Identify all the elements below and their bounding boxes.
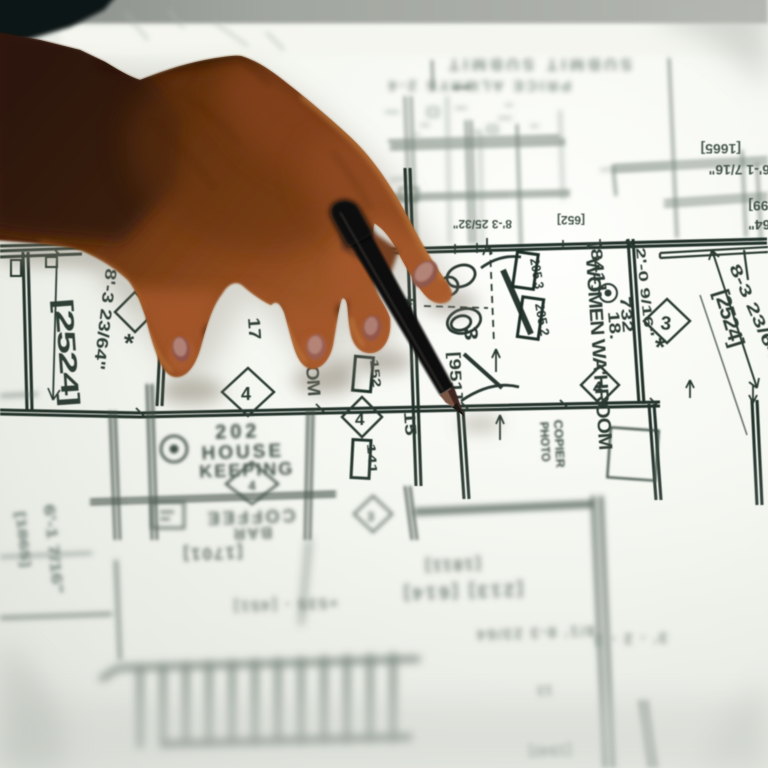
svg-text:18.: 18. [604, 311, 623, 340]
svg-text:*: * [124, 328, 135, 358]
svg-text:[652]: [652] [557, 213, 585, 227]
svg-text:6'-1 7/16": 6'-1 7/16" [709, 162, 768, 178]
svg-text:3: 3 [459, 326, 481, 342]
svg-text:[999]: [999] [748, 198, 768, 214]
svg-text:[1665]: [1665] [701, 141, 741, 157]
svg-text:17: 17 [244, 317, 264, 340]
svg-text:4: 4 [355, 410, 365, 429]
svg-text:5/64": 5/64" [748, 217, 768, 233]
svg-text:4: 4 [241, 384, 251, 404]
svg-text:8'-3 25/32": 8'-3 25/32" [453, 217, 512, 231]
svg-text:SUBMIT SUBMIT: SUBMIT SUBMIT [445, 55, 632, 74]
svg-text:PRICE ALWAYS 2-4: PRICE ALWAYS 2-4 [386, 77, 571, 94]
svg-text:*: * [655, 332, 666, 362]
